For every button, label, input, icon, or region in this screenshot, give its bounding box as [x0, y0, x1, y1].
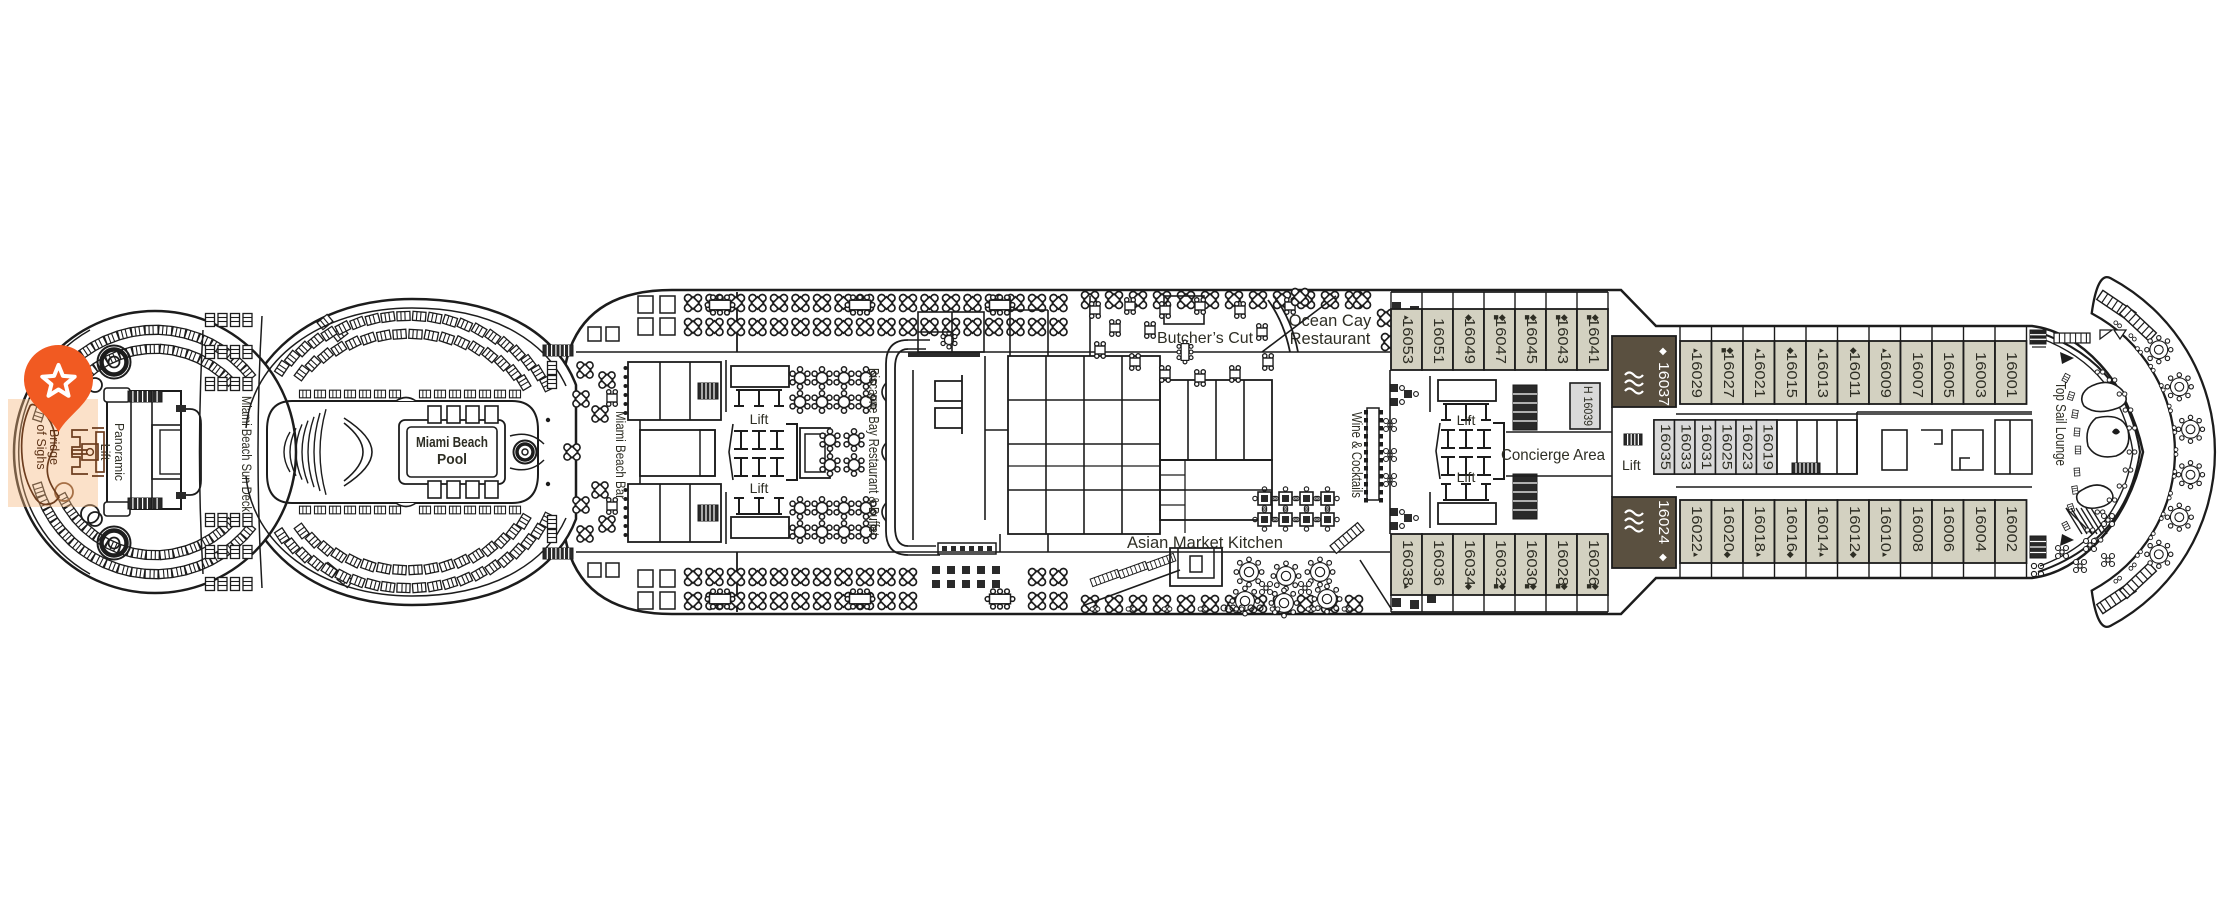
svg-text:16049: 16049 — [1461, 318, 1478, 364]
svg-text:16041: 16041 — [1585, 318, 1602, 364]
svg-text:Butcher’s Cut: Butcher’s Cut — [1157, 330, 1254, 347]
svg-text:Miami Beach: Miami Beach — [416, 435, 488, 451]
svg-text:■◆: ■◆ — [1493, 581, 1505, 591]
svg-text:16035: 16035 — [1658, 424, 1674, 470]
svg-text:◆: ◆ — [1659, 552, 1667, 563]
svg-text:Lift: Lift — [1457, 412, 1476, 428]
svg-text:16003: 16003 — [1972, 352, 1989, 398]
svg-text:16036: 16036 — [1430, 540, 1447, 586]
svg-text:Asian Market Kitchen: Asian Market Kitchen — [1127, 534, 1283, 552]
svg-text:16031: 16031 — [1699, 424, 1715, 470]
svg-text:16009: 16009 — [1877, 352, 1894, 398]
svg-text:◆: ◆ — [1850, 549, 1857, 559]
svg-text:◆: ◆ — [1787, 549, 1794, 559]
svg-text:◆: ◆ — [1724, 549, 1731, 559]
svg-text:▸: ▸ — [1883, 345, 1888, 355]
svg-text:16019: 16019 — [1761, 424, 1777, 470]
svg-text:▸: ▸ — [1694, 549, 1699, 559]
svg-text:16025: 16025 — [1720, 424, 1736, 470]
svg-text:■◆: ■◆ — [1555, 581, 1567, 591]
svg-text:■◆: ■◆ — [1586, 581, 1598, 591]
svg-text:Miami Beach Sun Deck: Miami Beach Sun Deck — [239, 396, 255, 513]
svg-text:◆: ◆ — [1659, 346, 1667, 357]
svg-text:16037: 16037 — [1655, 362, 1672, 406]
svg-text:H 16039: H 16039 — [1581, 386, 1593, 426]
svg-text:Ocean Cay: Ocean Cay — [1289, 312, 1372, 330]
svg-text:16022: 16022 — [1688, 506, 1705, 552]
svg-text:16038: 16038 — [1399, 540, 1416, 586]
svg-text:Lift: Lift — [98, 444, 112, 461]
svg-text:16043: 16043 — [1554, 318, 1571, 364]
svg-text:16029: 16029 — [1688, 352, 1705, 398]
svg-text:16032: 16032 — [1492, 540, 1509, 586]
svg-text:16034: 16034 — [1461, 540, 1478, 586]
svg-text:■◆: ■◆ — [1524, 581, 1536, 591]
svg-text:16028: 16028 — [1554, 540, 1571, 586]
svg-text:16014: 16014 — [1814, 506, 1831, 552]
svg-text:16007: 16007 — [1909, 352, 1926, 398]
svg-text:Biscayne Bay Restaurant & Buff: Biscayne Bay Restaurant & Buffet — [865, 368, 882, 537]
svg-text:▸: ▸ — [1404, 581, 1409, 591]
svg-text:16023: 16023 — [1740, 424, 1756, 470]
svg-text:Bridge: Bridge — [47, 429, 61, 465]
svg-text:▸: ▸ — [1757, 345, 1762, 355]
svg-text:16024: 16024 — [1655, 500, 1672, 544]
svg-text:16015: 16015 — [1783, 352, 1800, 398]
svg-text:Lift: Lift — [750, 480, 769, 496]
svg-text:16012: 16012 — [1846, 506, 1863, 552]
svg-text:16001: 16001 — [2003, 352, 2020, 398]
svg-text:16011: 16011 — [1846, 352, 1863, 398]
svg-text:■◆: ■◆ — [1555, 312, 1567, 322]
svg-text:16008: 16008 — [1909, 506, 1926, 552]
svg-text:of Sighs: of Sighs — [34, 424, 48, 469]
svg-text:Lift: Lift — [1622, 457, 1641, 473]
svg-text:16021: 16021 — [1751, 352, 1768, 398]
svg-text:Lift: Lift — [750, 411, 769, 427]
svg-text:◆: ◆ — [1465, 312, 1472, 322]
svg-text:Concierge Area: Concierge Area — [1501, 447, 1605, 464]
svg-text:16033: 16033 — [1679, 424, 1695, 470]
svg-text:16027: 16027 — [1720, 352, 1737, 398]
svg-text:Top Sail Lounge: Top Sail Lounge — [2052, 382, 2069, 466]
svg-text:16026: 16026 — [1585, 540, 1602, 586]
svg-text:▸: ▸ — [1820, 549, 1825, 559]
svg-text:■◆: ■◆ — [1524, 312, 1536, 322]
svg-text:16010: 16010 — [1877, 506, 1894, 552]
svg-text:16051: 16051 — [1430, 318, 1447, 364]
svg-text:Restaurant: Restaurant — [1290, 330, 1371, 348]
svg-text:▸: ▸ — [1694, 345, 1699, 355]
svg-text:▸: ▸ — [1404, 312, 1409, 322]
svg-text:■◆: ■◆ — [1721, 345, 1733, 355]
svg-text:◆: ◆ — [1465, 581, 1472, 591]
svg-text:16030: 16030 — [1523, 540, 1540, 586]
svg-text:▸: ▸ — [1820, 345, 1825, 355]
svg-text:16016: 16016 — [1783, 506, 1800, 552]
svg-text:16006: 16006 — [1940, 506, 1957, 552]
svg-text:◆: ◆ — [1787, 345, 1794, 355]
svg-text:16020: 16020 — [1720, 506, 1737, 552]
svg-text:■◆: ■◆ — [1586, 312, 1598, 322]
svg-text:Miami Beach Bar: Miami Beach Bar — [613, 411, 629, 499]
svg-text:Panoramic: Panoramic — [112, 423, 126, 481]
svg-text:16018: 16018 — [1751, 506, 1768, 552]
svg-text:Wine & Cocktails: Wine & Cocktails — [1348, 412, 1364, 498]
svg-text:16047: 16047 — [1492, 318, 1509, 364]
svg-text:▸: ▸ — [1883, 549, 1888, 559]
svg-text:Lift: Lift — [1457, 469, 1476, 485]
svg-text:■◆: ■◆ — [1493, 312, 1505, 322]
svg-text:16002: 16002 — [2003, 506, 2020, 552]
svg-text:16053: 16053 — [1399, 318, 1416, 364]
svg-text:16004: 16004 — [1972, 506, 1989, 552]
svg-text:Pool: Pool — [437, 452, 467, 468]
svg-text:16045: 16045 — [1523, 318, 1540, 364]
svg-text:▸: ▸ — [1757, 549, 1762, 559]
svg-text:16013: 16013 — [1814, 352, 1831, 398]
svg-text:16005: 16005 — [1940, 352, 1957, 398]
svg-text:◆: ◆ — [1850, 345, 1857, 355]
